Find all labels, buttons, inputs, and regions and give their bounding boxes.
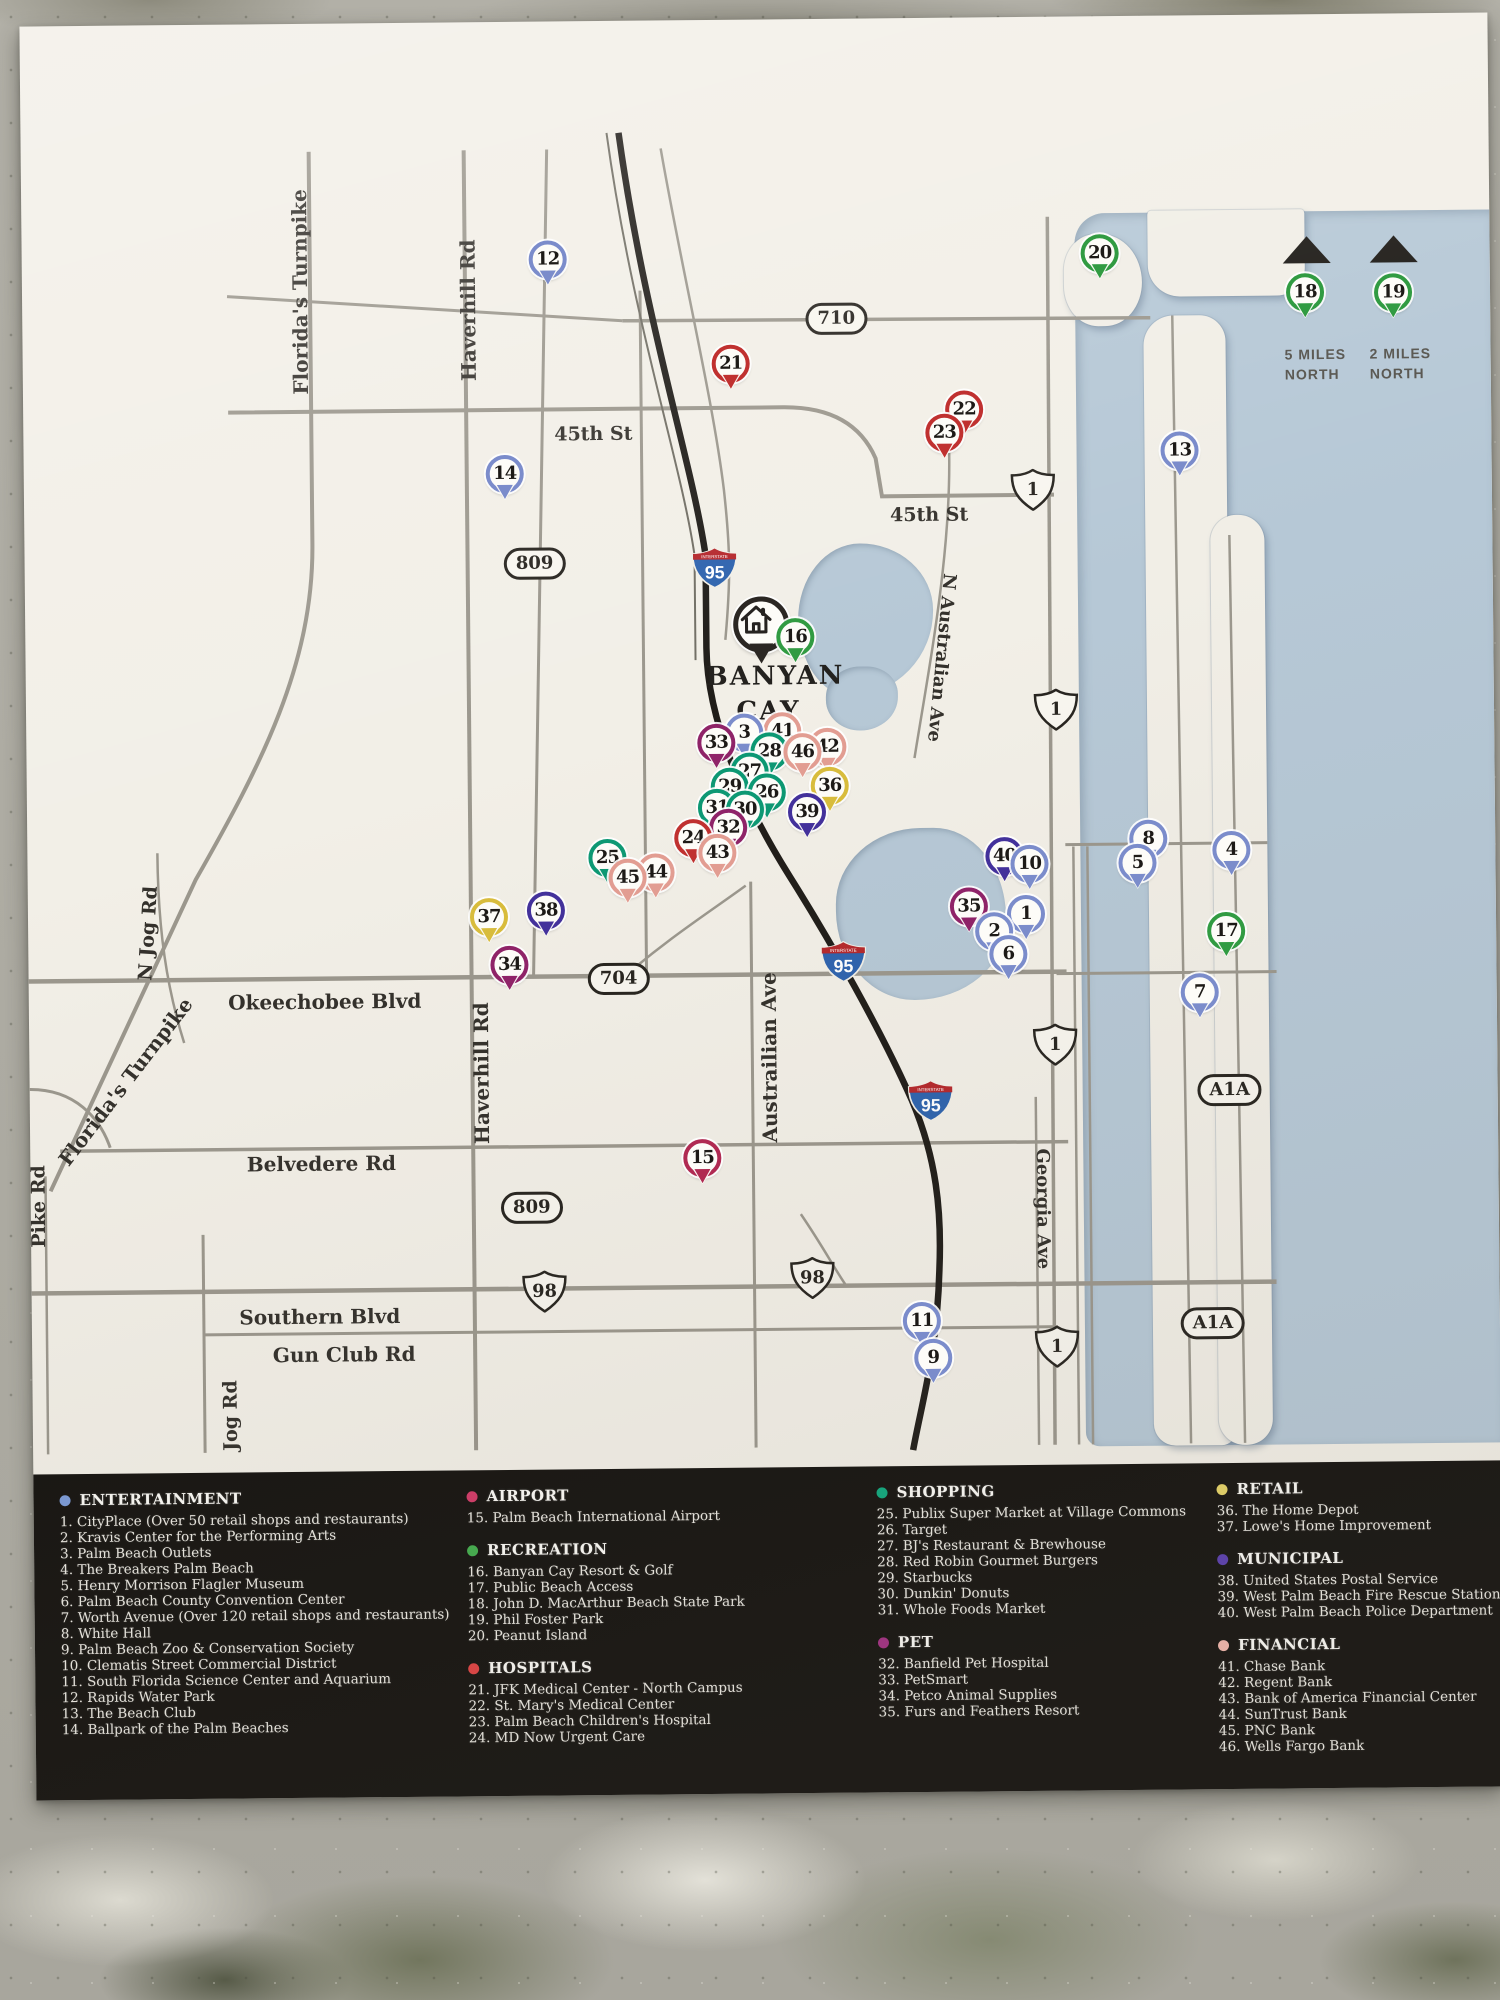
us-route-shield: 1: [1010, 469, 1056, 511]
pin-number: 45: [612, 863, 642, 893]
legend-category-header: HOSPITALS: [468, 1657, 745, 1678]
svg-text:95: 95: [834, 956, 854, 976]
legend-category-header: PET: [878, 1630, 1187, 1651]
legend-category-title: RECREATION: [487, 1540, 608, 1559]
route-shield-oval: A1A: [1197, 1074, 1262, 1107]
category-dot-icon: [467, 1491, 478, 1502]
svg-text:INTERSTATE: INTERSTATE: [917, 1087, 944, 1092]
pin-number: 4: [1216, 835, 1246, 865]
category-dot-icon: [878, 1637, 889, 1648]
map-pin-10: 10: [1010, 845, 1048, 883]
map-pin-14: 14: [486, 455, 524, 493]
pin-number: 23: [929, 418, 959, 448]
category-dot-icon: [468, 1663, 479, 1674]
compass-distance-label: 5 MILESNORTH: [1285, 344, 1375, 385]
map-pin-20: 20: [1080, 234, 1118, 272]
road-label: Southern Blvd: [239, 1304, 400, 1330]
compass-distance-label: 2 MILESNORTH: [1370, 343, 1460, 384]
road-label: Austrailian Ave: [757, 972, 783, 1143]
map-pin-37: 37: [470, 898, 508, 936]
legend-category-retail: RETAIL36. The Home Depot37. Lowe's Home …: [1216, 1477, 1500, 1535]
category-dot-icon: [876, 1487, 887, 1498]
map-pin-45: 45: [608, 859, 646, 897]
legend-category-header: SHOPPING: [876, 1480, 1185, 1501]
pin-number: 33: [701, 728, 731, 758]
svg-text:1: 1: [1050, 699, 1063, 720]
road-label: Pike Rd: [27, 1165, 50, 1248]
legend-category-title: HOSPITALS: [488, 1658, 592, 1677]
map-pin-17: 17: [1207, 912, 1245, 950]
route-shield-oval: 710: [805, 302, 867, 335]
us-route-shield: 1: [1032, 1023, 1078, 1065]
map-pin-34: 34: [490, 946, 528, 984]
legend-item: 46. Wells Fargo Bank: [1219, 1736, 1500, 1755]
pin-number: 9: [918, 1343, 948, 1373]
legend-item: 31. Whole Foods Market: [878, 1599, 1187, 1618]
route-shield-oval: A1A: [1181, 1307, 1246, 1340]
legend-category-title: PET: [898, 1633, 934, 1651]
legend-item: 18. John D. MacArthur Beach State Park: [468, 1594, 745, 1613]
road-label: Florida's Turnpike: [287, 189, 313, 395]
pin-number: 17: [1211, 916, 1241, 946]
legend-column: AIRPORT15. Palm Beach International Airp…: [466, 1485, 746, 1754]
north-arrow-icon: [1282, 236, 1330, 263]
category-dot-icon: [1216, 1484, 1227, 1495]
pin-number: 19: [1378, 277, 1408, 307]
pin-number: 6: [993, 939, 1023, 969]
interstate-shield: INTERSTATE95: [691, 547, 737, 589]
legend-category-title: SHOPPING: [896, 1482, 994, 1501]
legend-category-hospitals: HOSPITALS21. JFK Medical Center - North …: [468, 1657, 746, 1747]
legend-category-entertainment: ENTERTAINMENT1. CityPlace (Over 50 retai…: [59, 1488, 450, 1739]
legend-category-recreation: RECREATION16. Banyan Cay Resort & Golf17…: [467, 1539, 745, 1645]
legend-item: 20. Peanut Island: [468, 1626, 745, 1645]
railroad-line: [606, 132, 695, 661]
map-pin-43: 43: [698, 834, 736, 872]
road-label: Okeechobee Blvd: [228, 989, 422, 1015]
brochure-page: Florida's TurnpikeHaverhill Rd45th St45t…: [19, 12, 1500, 1800]
pin-number: 38: [531, 895, 561, 925]
legend-category-pet: PET32. Banfield Pet Hospital33. PetSmart…: [878, 1630, 1188, 1720]
legend-item: 25. Publix Super Market at Village Commo…: [877, 1503, 1186, 1522]
pin-number: 34: [494, 950, 524, 980]
svg-text:1: 1: [1049, 1034, 1062, 1055]
legend-item: 14. Ballpark of the Palm Beaches: [62, 1719, 451, 1739]
north-arrow-icon: [1369, 235, 1417, 262]
map-pin-15: 15: [683, 1139, 721, 1177]
pin-number: 12: [533, 244, 563, 274]
route-shield-oval: 809: [504, 547, 566, 580]
map-pin-46: 46: [783, 733, 821, 771]
road-label: Georgia Ave: [1032, 1148, 1054, 1269]
map-pin-33: 33: [697, 724, 735, 762]
map-pin-39: 39: [788, 793, 826, 831]
legend-category-financial: FINANCIAL41. Chase Bank42. Regent Bank43…: [1218, 1633, 1500, 1755]
map-pin-13: 13: [1160, 431, 1198, 469]
legend-category-title: MUNICIPAL: [1237, 1549, 1343, 1568]
legend-category-header: RECREATION: [467, 1539, 744, 1560]
map-pin-23: 23: [925, 414, 963, 452]
pin-number: 10: [1014, 849, 1044, 879]
road-label: 45th St: [890, 503, 968, 526]
legend-category-header: RETAIL: [1216, 1477, 1500, 1498]
road-label: Jog Rd: [219, 1380, 242, 1451]
map-pin-11: 11: [903, 1302, 941, 1340]
interstate-shield: INTERSTATE95: [908, 1080, 954, 1122]
legend-column: RETAIL36. The Home Depot37. Lowe's Home …: [1216, 1477, 1500, 1762]
road-label: Haverhill Rd: [469, 1002, 494, 1144]
legend-category-header: ENTERTAINMENT: [59, 1488, 448, 1510]
map-pin-38: 38: [527, 891, 565, 929]
legend-category-title: ENTERTAINMENT: [79, 1490, 241, 1510]
legend-item: 24. MD Now Urgent Care: [469, 1728, 746, 1747]
map-pin-18: 18: [1286, 273, 1324, 311]
legend-category-shopping: SHOPPING25. Publix Super Market at Villa…: [876, 1480, 1187, 1618]
map-pin-4: 4: [1212, 831, 1250, 869]
map-pin-5: 5: [1118, 844, 1156, 882]
road-label: 45th St: [554, 423, 632, 446]
road-label: Belvedere Rd: [247, 1151, 396, 1176]
legend-category-title: AIRPORT: [486, 1486, 569, 1505]
map-pin-21: 21: [712, 345, 750, 383]
legend-band: ENTERTAINMENT1. CityPlace (Over 50 retai…: [33, 1460, 1500, 1800]
legend-item: 15. Palm Beach International Airport: [467, 1508, 744, 1527]
road-label: Haverhill Rd: [455, 239, 480, 381]
map-area: Florida's TurnpikeHaverhill Rd45th St45t…: [19, 12, 1500, 1476]
svg-text:98: 98: [532, 1281, 557, 1302]
pin-number: 1: [1011, 899, 1041, 929]
legend-column: SHOPPING25. Publix Super Market at Villa…: [876, 1480, 1188, 1727]
legend-category-header: FINANCIAL: [1218, 1633, 1500, 1654]
legend-item: 37. Lowe's Home Improvement: [1217, 1516, 1500, 1535]
legend-category-airport: AIRPORT15. Palm Beach International Airp…: [466, 1485, 744, 1527]
pin-number: 20: [1085, 238, 1115, 268]
us-route-shield: 1: [1034, 1325, 1080, 1367]
pin-number: 16: [780, 622, 810, 652]
map-pin-7: 7: [1181, 973, 1219, 1011]
map-pin-19: 19: [1374, 273, 1412, 311]
home-icon: [738, 602, 774, 636]
map-pin-12: 12: [529, 240, 567, 278]
category-dot-icon: [1217, 1554, 1228, 1565]
svg-text:INTERSTATE: INTERSTATE: [701, 554, 728, 559]
category-dot-icon: [60, 1495, 71, 1506]
legend-category-header: AIRPORT: [466, 1485, 743, 1506]
us-route-shield: 1: [1033, 688, 1079, 730]
pin-number: 14: [490, 459, 520, 489]
svg-text:INTERSTATE: INTERSTATE: [830, 948, 857, 953]
legend-category-title: RETAIL: [1236, 1479, 1303, 1498]
road-label: Gun Club Rd: [273, 1342, 416, 1367]
category-dot-icon: [1218, 1640, 1229, 1651]
svg-text:95: 95: [705, 562, 725, 582]
legend-item: 23. Palm Beach Children's Hospital: [469, 1712, 746, 1731]
pin-number: 18: [1290, 277, 1320, 307]
category-dot-icon: [467, 1545, 478, 1556]
pin-number: 11: [907, 1306, 937, 1336]
pin-number: 5: [1122, 848, 1152, 878]
legend-category-title: FINANCIAL: [1238, 1635, 1341, 1654]
pin-number: 13: [1164, 435, 1194, 465]
pin-number: 43: [702, 838, 732, 868]
svg-text:98: 98: [800, 1267, 825, 1288]
route-shield-oval: 809: [501, 1191, 563, 1224]
map-pin-16: 16: [776, 618, 814, 656]
interstate-shield: INTERSTATE95: [820, 940, 866, 982]
svg-text:1: 1: [1027, 479, 1040, 500]
us-route-shield: 98: [789, 1257, 835, 1299]
us-route-shield: 98: [521, 1270, 567, 1312]
svg-text:1: 1: [1051, 1336, 1064, 1357]
legend-item: 35. Furs and Feathers Resort: [879, 1701, 1188, 1720]
svg-text:95: 95: [921, 1095, 941, 1115]
legend-category-municipal: MUNICIPAL38. United States Postal Servic…: [1217, 1547, 1500, 1621]
pin-number: 21: [716, 349, 746, 379]
pin-number: 46: [787, 737, 817, 767]
legend-category-header: MUNICIPAL: [1217, 1547, 1500, 1568]
legend-item: 21. JFK Medical Center - North Campus: [468, 1680, 745, 1699]
legend-item: 43. Bank of America Financial Center: [1218, 1688, 1500, 1707]
legend-column: ENTERTAINMENT1. CityPlace (Over 50 retai…: [59, 1488, 450, 1746]
route-shield-oval: 704: [588, 963, 650, 996]
pin-number: 37: [474, 902, 504, 932]
pin-number: 7: [1185, 977, 1215, 1007]
pin-number: 39: [792, 797, 822, 827]
pin-number: 15: [687, 1143, 717, 1173]
legend-item: 40. West Palm Beach Police Department: [1218, 1602, 1500, 1621]
map-pin-6: 6: [989, 935, 1027, 973]
map-pin-9: 9: [914, 1339, 952, 1377]
